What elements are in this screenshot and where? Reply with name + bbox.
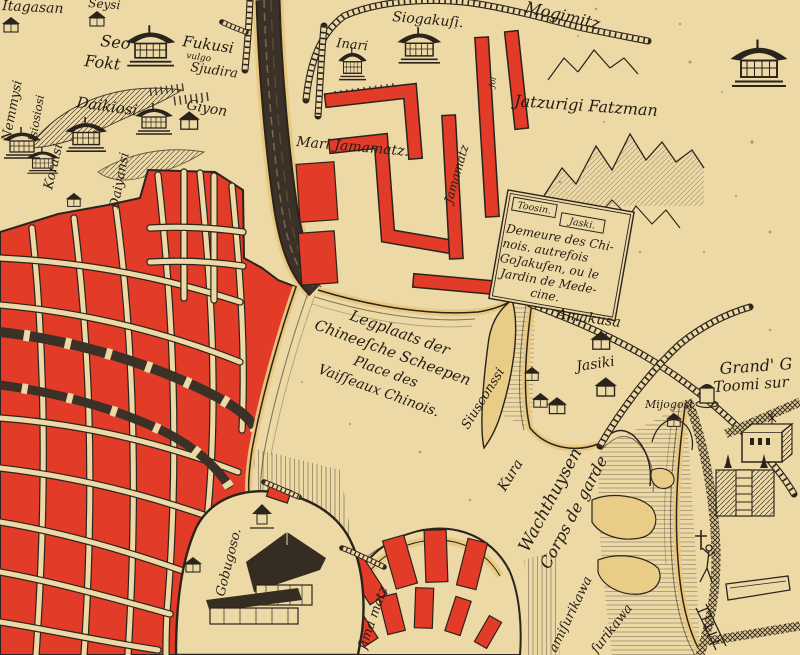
chinese-residence-note: Toosin. Jaski. Demeure des Chi- nois. au…: [489, 190, 634, 321]
label-fokt: Fokt: [83, 51, 122, 74]
label-seo: Seo: [100, 31, 132, 53]
map-canvas: Toosin. Jaski. Demeure des Chi- nois. au…: [0, 0, 800, 655]
label-mijogosi: Mijogosi: [644, 398, 693, 411]
antique-nagasaki-map: Toosin. Jaski. Demeure des Chi- nois. au…: [0, 0, 800, 655]
